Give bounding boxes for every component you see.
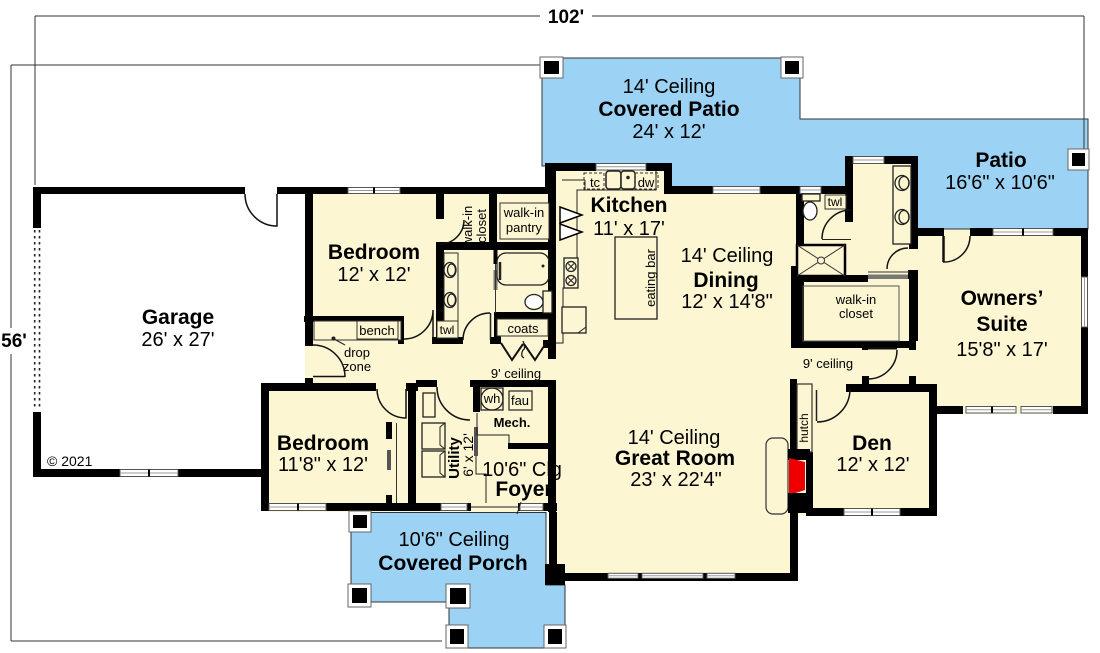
svg-text:bench: bench — [359, 323, 394, 338]
svg-text:walk-in: walk-in — [460, 206, 475, 247]
svg-text:9' ceiling: 9' ceiling — [803, 356, 853, 371]
svg-text:16'6" x 10'6": 16'6" x 10'6" — [945, 172, 1055, 194]
svg-text:Dining: Dining — [693, 269, 758, 292]
svg-text:23' x 22'4": 23' x 22'4" — [630, 469, 721, 491]
svg-text:pantry: pantry — [506, 220, 543, 235]
svg-text:14' Ceiling: 14' Ceiling — [628, 427, 721, 449]
svg-text:walk-in: walk-in — [503, 205, 544, 220]
svg-text:closet: closet — [839, 306, 873, 321]
svg-text:12' x 12': 12' x 12' — [337, 264, 410, 286]
svg-text:closet: closet — [474, 209, 489, 243]
svg-text:Mech.: Mech. — [494, 415, 531, 430]
svg-text:24' x 12': 24' x 12' — [632, 121, 705, 143]
svg-text:Covered Patio: Covered Patio — [598, 98, 739, 121]
svg-text:6' x 12': 6' x 12' — [460, 433, 476, 476]
svg-text:hutch: hutch — [797, 413, 811, 442]
svg-text:26' x 27': 26' x 27' — [141, 329, 214, 351]
svg-text:twl: twl — [828, 195, 843, 209]
svg-text:14' Ceiling: 14' Ceiling — [623, 76, 716, 98]
svg-text:Owners’: Owners’ — [961, 287, 1044, 310]
svg-text:fau: fau — [511, 393, 529, 408]
svg-text:10'6" Ceiling: 10'6" Ceiling — [399, 529, 510, 551]
svg-text:Patio: Patio — [975, 149, 1026, 172]
svg-text:102': 102' — [548, 7, 584, 28]
svg-text:Bedroom: Bedroom — [277, 432, 369, 455]
svg-text:Garage: Garage — [142, 306, 214, 329]
svg-text:Bedroom: Bedroom — [328, 241, 420, 264]
svg-text:walk-in: walk-in — [835, 292, 876, 307]
svg-text:11' x 17': 11' x 17' — [593, 218, 665, 240]
svg-text:eating bar: eating bar — [643, 248, 658, 306]
svg-text:tc: tc — [590, 175, 601, 190]
svg-text:15'8" x 17': 15'8" x 17' — [956, 339, 1047, 361]
svg-text:12' x 14'8": 12' x 14'8" — [681, 291, 772, 313]
svg-text:56': 56' — [1, 331, 27, 352]
svg-text:Covered Porch: Covered Porch — [378, 552, 527, 575]
svg-text:Foyer: Foyer — [495, 478, 552, 501]
svg-text:12' x 12': 12' x 12' — [836, 454, 909, 476]
svg-text:© 2021: © 2021 — [47, 453, 93, 469]
svg-text:twl: twl — [440, 323, 455, 337]
svg-text:Suite: Suite — [976, 313, 1027, 336]
svg-text:drop: drop — [344, 345, 370, 360]
svg-text:zone: zone — [343, 359, 371, 374]
svg-text:coats: coats — [507, 321, 539, 336]
svg-text:Den: Den — [852, 432, 892, 455]
svg-text:Kitchen: Kitchen — [590, 194, 667, 217]
svg-text:Great Room: Great Room — [615, 447, 735, 470]
svg-text:11'8" x 12': 11'8" x 12' — [278, 454, 368, 476]
svg-text:wh: wh — [483, 391, 501, 406]
svg-text:9' ceiling: 9' ceiling — [491, 366, 541, 381]
svg-text:14' Ceiling: 14' Ceiling — [681, 245, 774, 267]
svg-text:dw: dw — [638, 175, 655, 190]
